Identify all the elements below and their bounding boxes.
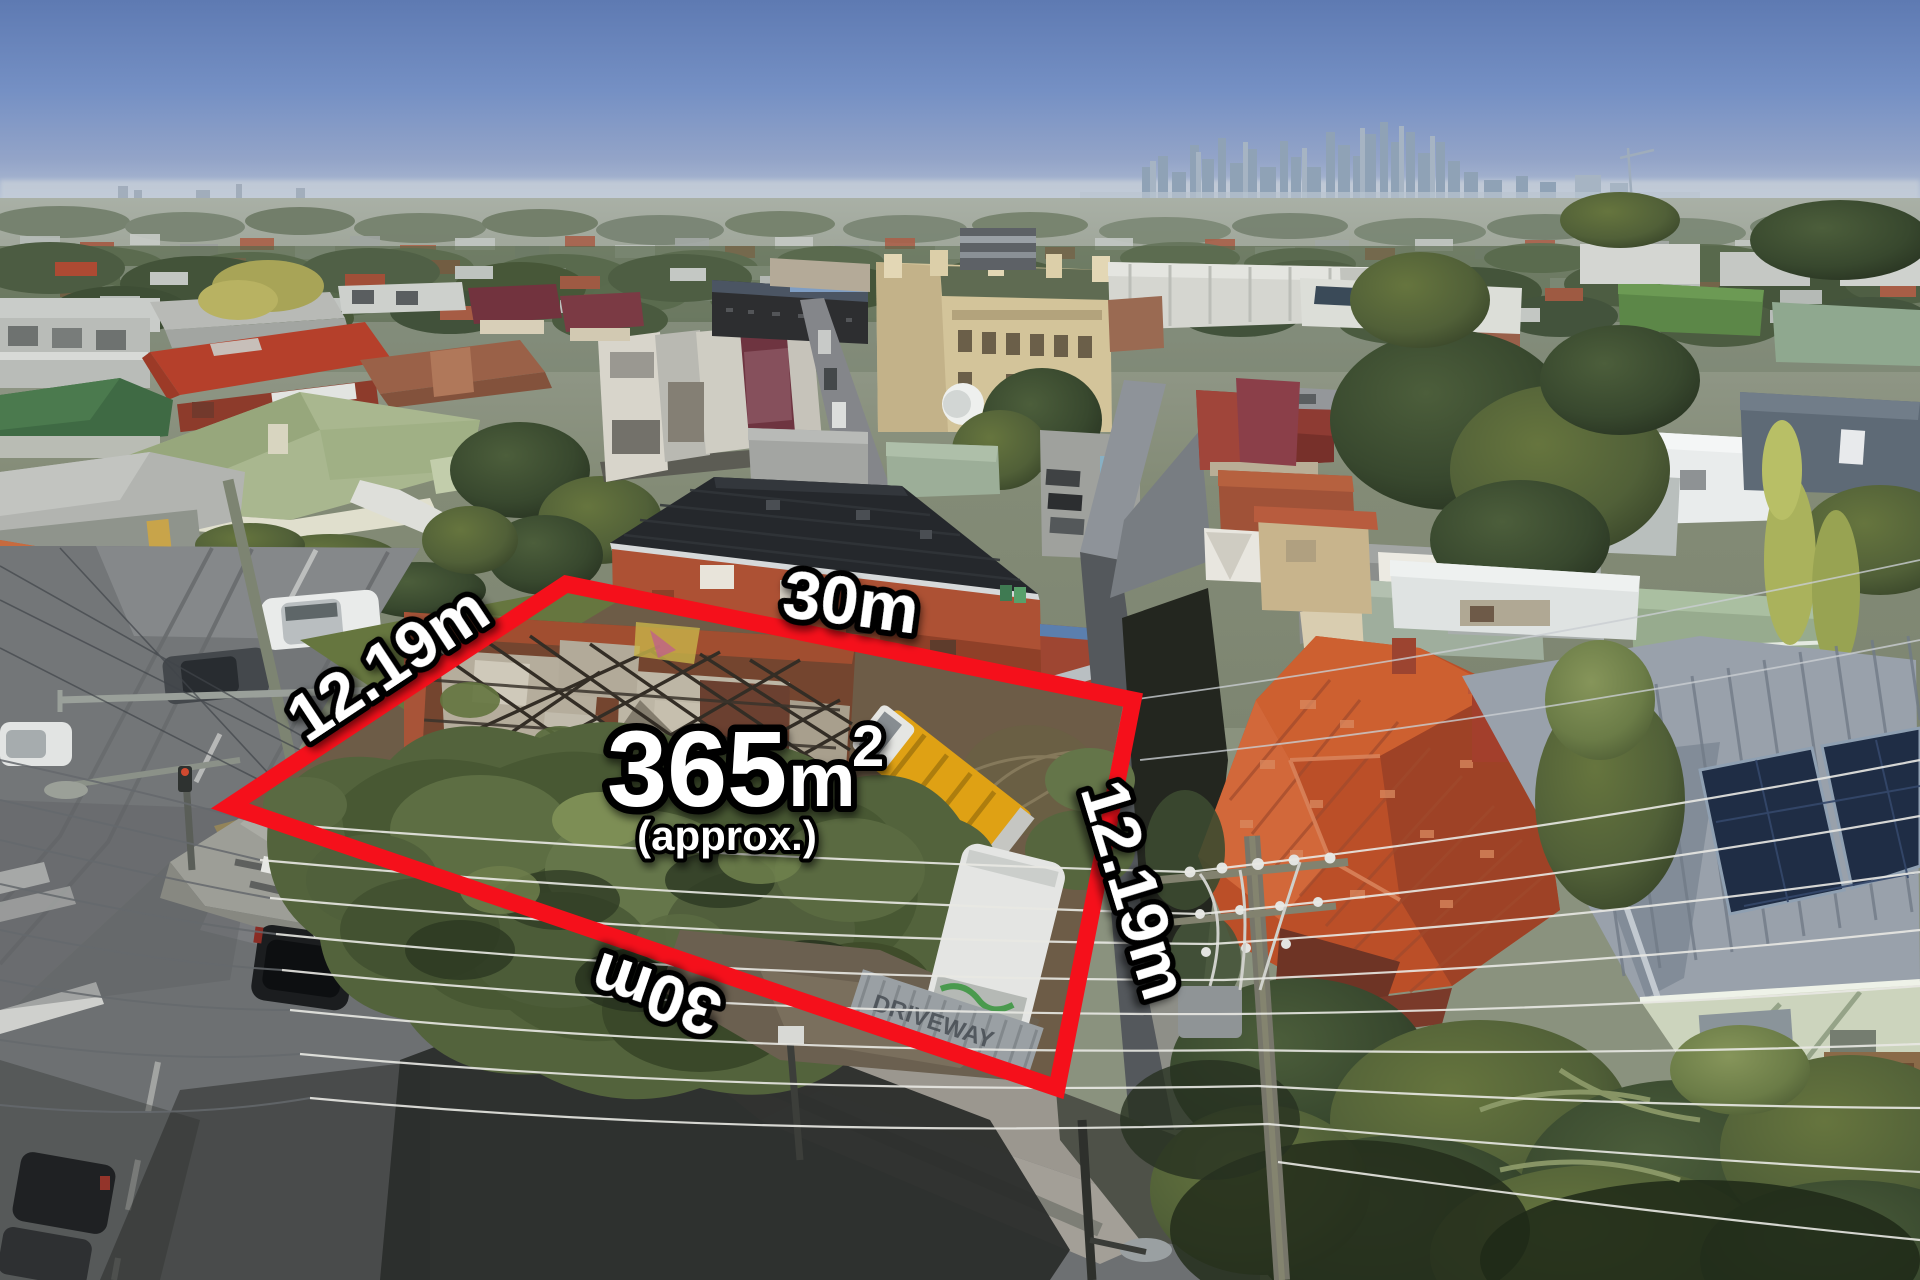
svg-text:365: 365	[607, 708, 787, 829]
svg-text:m: m	[788, 738, 856, 823]
svg-text:2: 2	[852, 714, 884, 779]
svg-text:(approx.): (approx.)	[637, 812, 817, 859]
